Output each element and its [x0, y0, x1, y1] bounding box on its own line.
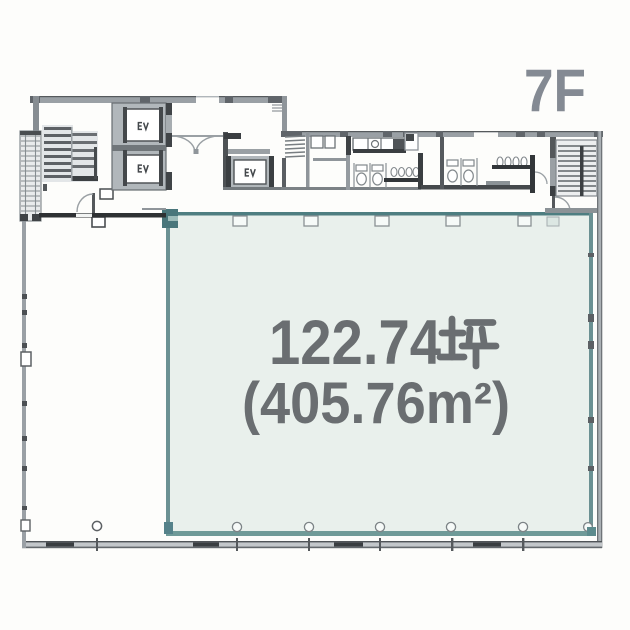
svg-text:7F: 7F	[524, 57, 586, 124]
svg-text:122.74: 122.74	[269, 308, 441, 378]
svg-text:(405.76m²): (405.76m²)	[242, 371, 510, 436]
